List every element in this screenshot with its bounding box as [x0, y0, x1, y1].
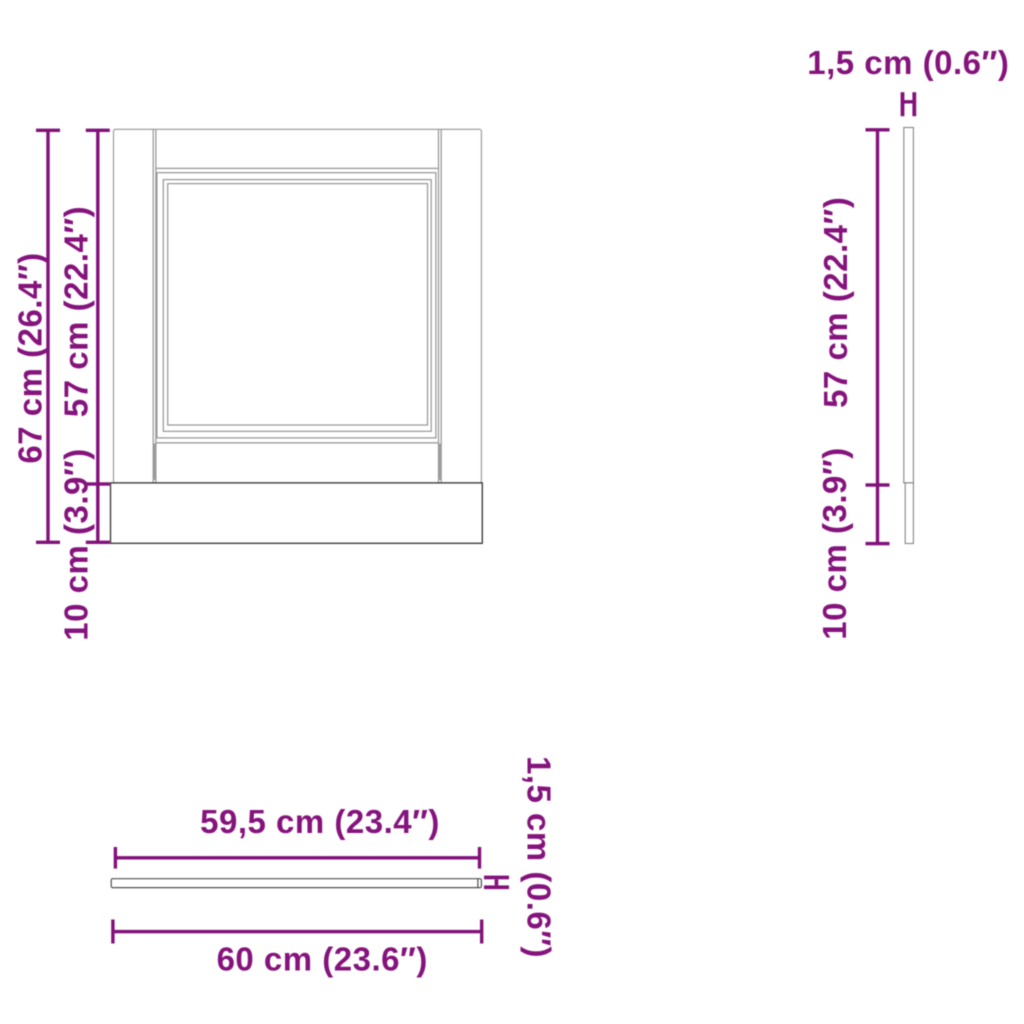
svg-text:1,5 cm (0.6″): 1,5 cm (0.6″) [521, 756, 558, 958]
svg-text:1,5 cm (0.6″): 1,5 cm (0.6″) [807, 44, 1009, 81]
svg-text:60 cm (23.6″): 60 cm (23.6″) [217, 940, 428, 977]
svg-text:57 cm (22.4″): 57 cm (22.4″) [817, 197, 854, 408]
svg-text:67 cm (26.4″): 67 cm (26.4″) [12, 252, 49, 463]
svg-text:57 cm (22.4″): 57 cm (22.4″) [58, 206, 95, 417]
svg-text:10 cm (3.9″): 10 cm (3.9″) [58, 448, 95, 640]
svg-text:10 cm (3.9″): 10 cm (3.9″) [816, 447, 853, 639]
svg-text:59,5 cm (23.4″): 59,5 cm (23.4″) [200, 803, 440, 840]
